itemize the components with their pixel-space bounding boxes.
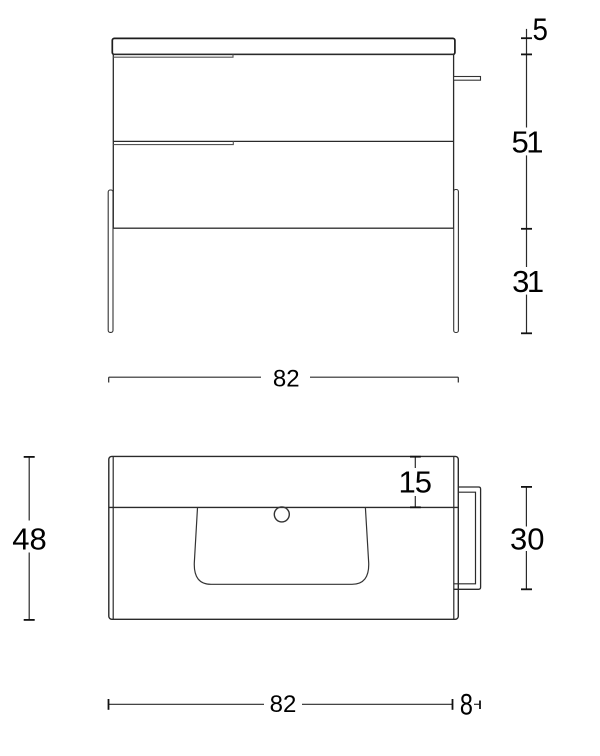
svg-text:15: 15 <box>399 465 431 500</box>
svg-text:30: 30 <box>510 521 544 556</box>
svg-text:82: 82 <box>273 366 300 393</box>
svg-text:5: 5 <box>532 12 547 47</box>
svg-text:31: 31 <box>512 264 543 299</box>
svg-text:51: 51 <box>512 124 543 159</box>
svg-text:8: 8 <box>460 688 473 721</box>
svg-text:82: 82 <box>270 691 297 718</box>
svg-text:48: 48 <box>12 522 46 557</box>
